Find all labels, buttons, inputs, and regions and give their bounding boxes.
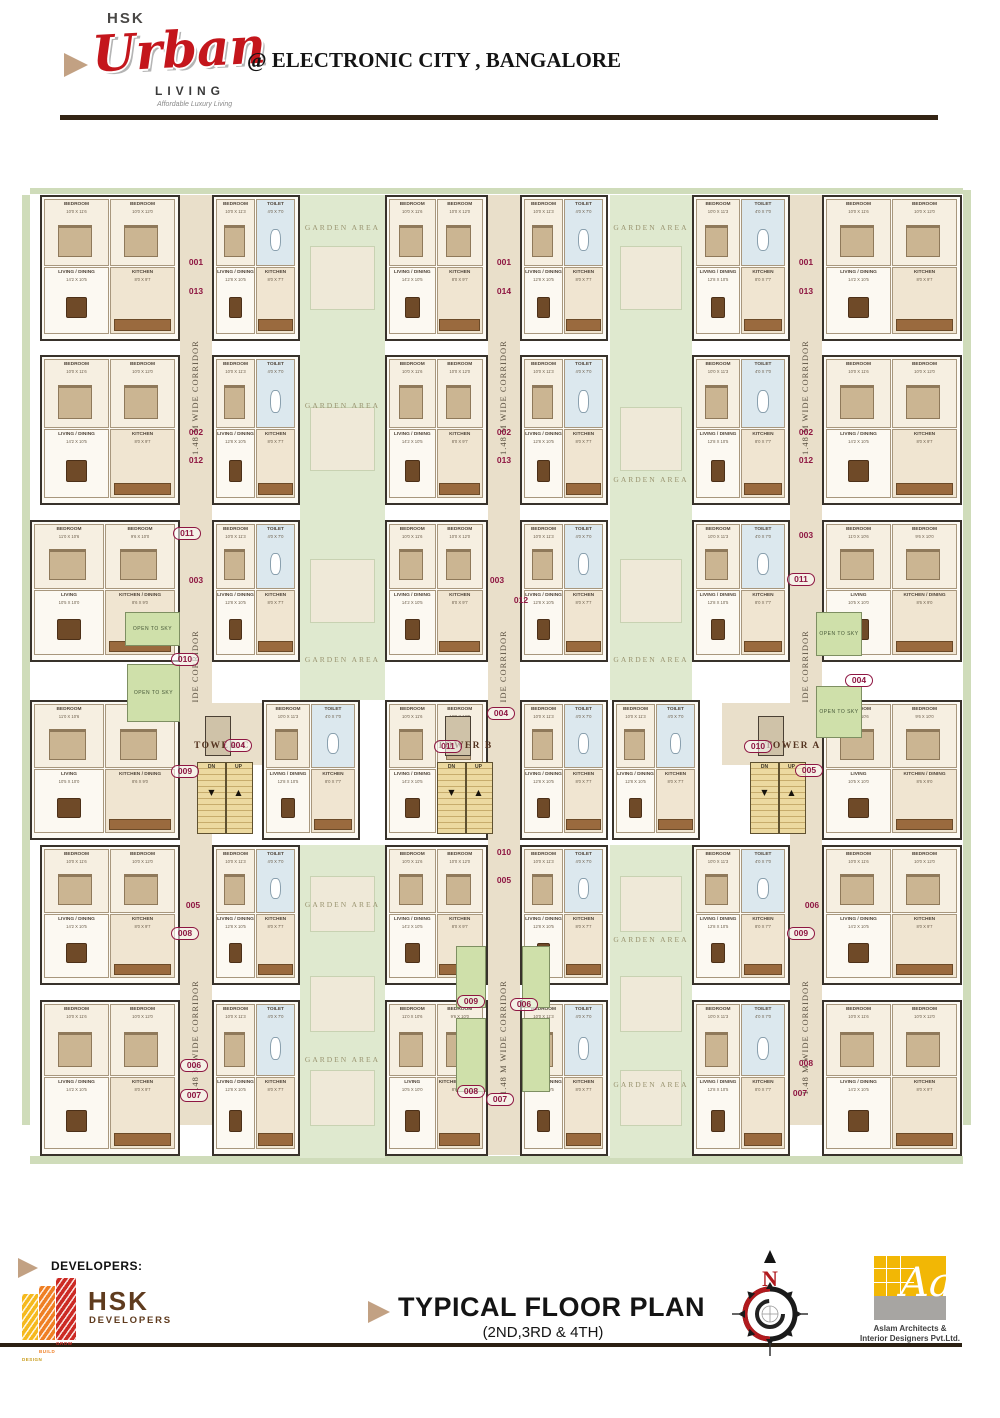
room-dimension: 8'0 X 7'7 — [565, 439, 602, 444]
room: BEDROOM10'0 X 11'3 — [216, 359, 255, 428]
room-dimension: 10'5 X 10'0 — [35, 600, 103, 605]
room-label: BEDROOM — [390, 202, 435, 207]
room-dimension: 14'2 X 10'5 — [390, 924, 435, 929]
unit-block: BEDROOM10'0 X 11'6BEDROOM10'0 X 12'0LIVI… — [40, 845, 180, 985]
room: KITCHEN8'0 X 7'7 — [741, 429, 785, 498]
dining-table-icon — [229, 943, 242, 963]
room: KITCHEN8'0 X 7'7 — [741, 590, 785, 655]
unit-number: 003 — [183, 575, 209, 586]
bed-icon — [49, 549, 86, 581]
room-label: KITCHEN — [893, 432, 956, 437]
room: LIVING / DINING14'2 X 10'5 — [826, 914, 891, 978]
toilet-icon — [757, 1037, 770, 1061]
bed-icon — [58, 225, 93, 258]
room-label: BEDROOM — [390, 362, 435, 367]
stair-dn-label: DN — [438, 764, 465, 770]
dining-table-icon — [405, 460, 420, 481]
room: TOILET4'0 X 7'0 — [256, 524, 295, 589]
architect-logo-icon: Aa — [874, 1256, 946, 1320]
room-dimension: 10'0 X 11'3 — [525, 209, 562, 214]
room: LIVING / DINING12'8 X 10'5 — [696, 590, 740, 655]
bed-icon — [124, 1032, 159, 1067]
dining-table-icon — [848, 1110, 869, 1132]
room-label: KITCHEN — [257, 432, 294, 437]
room-label: LIVING / DINING — [390, 270, 435, 275]
room-label: BEDROOM — [438, 852, 483, 857]
room-label: BEDROOM — [438, 362, 483, 367]
unit-number: 008 — [171, 927, 199, 940]
room-dimension: 10'0 X 11'6 — [45, 369, 108, 374]
bed-icon — [224, 225, 244, 258]
stair-dn-label: DN — [751, 764, 778, 770]
kitchen-counter-icon — [258, 319, 292, 331]
room-dimension: 10'0 X 11'6 — [827, 369, 890, 374]
room: BEDROOM10'0 X 11'3 — [524, 524, 563, 589]
room: KITCHEN8'0 X 7'7 — [256, 429, 295, 498]
room: BEDROOM11'0 X 10'6 — [34, 524, 104, 589]
toilet-icon — [270, 553, 281, 574]
room: BEDROOM10'0 X 11'3 — [216, 1004, 255, 1076]
room-dimension: 14'2 X 10'5 — [45, 924, 108, 929]
room-dimension: 10'0 X 12'0 — [893, 209, 956, 214]
room-dimension: 10'0 X 11'3 — [525, 859, 562, 864]
garden-area-label: GARDEN AREA — [288, 1055, 397, 1064]
unit-block: BEDROOM10'0 X 11'6BEDROOM10'0 X 12'0LIVI… — [822, 845, 962, 985]
room-label: LIVING / DINING — [525, 432, 562, 437]
garden-planter — [310, 407, 375, 471]
kitchen-counter-icon — [566, 819, 600, 830]
room-dimension: 10'0 X 12'0 — [438, 534, 483, 539]
room: BEDROOM10'0 X 11'3 — [524, 199, 563, 266]
room-label: BEDROOM — [525, 362, 562, 367]
room-dimension: 10'0 X 11'3 — [697, 859, 739, 864]
room-label: BEDROOM — [697, 527, 739, 532]
room: TOILET4'0 X 7'0 — [564, 524, 603, 589]
room-dimension: 12'8 X 10'5 — [217, 439, 254, 444]
bed-icon — [906, 729, 941, 760]
kitchen-counter-icon — [439, 319, 480, 331]
room: BEDROOM10'0 X 11'6 — [44, 849, 109, 913]
room-dimension: 8'0 X 9'7 — [111, 1087, 174, 1092]
room-dimension: 8'0 X 9'7 — [111, 277, 174, 282]
developer-arrow-icon — [18, 1258, 38, 1278]
kitchen-counter-icon — [439, 641, 480, 652]
room: BEDROOM10'0 X 11'6 — [389, 524, 436, 589]
room-label: KITCHEN — [257, 1080, 294, 1085]
dining-table-icon — [848, 798, 869, 818]
dining-table-icon — [848, 460, 869, 481]
room: LIVING / DINING14'2 X 10'5 — [44, 267, 109, 334]
room-label: TOILET — [742, 362, 784, 367]
dining-table-icon — [66, 297, 87, 318]
dining-table-icon — [629, 798, 642, 818]
room-label: LIVING / DINING — [217, 1080, 254, 1085]
room-label: BEDROOM — [827, 852, 890, 857]
unit-block: BEDROOM10'0 X 11'6BEDROOM10'0 X 12'0LIVI… — [40, 1000, 180, 1156]
room-label: KITCHEN — [111, 432, 174, 437]
room-dimension: 14'2 X 10'5 — [390, 779, 435, 784]
sheet-subtitle: (2ND,3RD & 4TH) — [398, 1324, 688, 1341]
room-label: BEDROOM — [217, 1007, 254, 1012]
room-dimension: 10'0 X 11'3 — [697, 534, 739, 539]
room-label: LIVING / DINING — [525, 270, 562, 275]
architect-caption-1: Aslam Architects & — [850, 1324, 970, 1334]
room-label: KITCHEN / DINING — [893, 772, 956, 777]
room-label: BEDROOM — [697, 202, 739, 207]
room: BEDROOM10'0 X 11'6 — [826, 1004, 891, 1076]
room-label: TOILET — [742, 852, 784, 857]
room-label: BEDROOM — [893, 362, 956, 367]
room-dimension: 8'0 X 7'7 — [565, 924, 602, 929]
room-label: LIVING / DINING — [267, 772, 309, 777]
room: LIVING / DINING12'8 X 10'5 — [216, 267, 255, 334]
room: BEDROOM10'0 X 11'3 — [696, 524, 740, 589]
toilet-icon — [670, 733, 681, 754]
room-dimension: 8'0 X 9'7 — [438, 600, 483, 605]
room-dimension: 8'0 X 7'7 — [257, 600, 294, 605]
bed-icon — [224, 1032, 244, 1067]
room: TOILET4'0 X 7'0 — [256, 359, 295, 428]
room: BEDROOM9'6 X 10'0 — [105, 524, 175, 589]
developers-label: DEVELOPERS: — [51, 1259, 143, 1273]
room-dimension: 12'8 X 10'5 — [697, 1087, 739, 1092]
dining-table-icon — [848, 943, 869, 963]
room-dimension: 10'0 X 12'0 — [438, 369, 483, 374]
room: KITCHEN8'0 X 7'7 — [256, 267, 295, 334]
unit-number: 001 — [793, 257, 819, 268]
room-dimension: 8'0 X 7'7 — [742, 439, 784, 444]
tower-label: TOWER C — [172, 741, 272, 751]
unit-block: BEDROOM10'0 X 11'3TOILET4'0 X 7'0LIVING … — [692, 845, 790, 985]
room-dimension: 8'0 X 9'7 — [111, 924, 174, 929]
unit-block: BEDROOM10'0 X 11'3TOILET4'0 X 7'0LIVING … — [212, 355, 300, 505]
room-dimension: 10'0 X 12'0 — [438, 209, 483, 214]
room: TOILET4'0 X 7'0 — [256, 1004, 295, 1076]
room-dimension: 10'0 X 11'6 — [390, 534, 435, 539]
room-label: KITCHEN — [742, 593, 784, 598]
dining-table-icon — [848, 297, 869, 318]
room-dimension: 4'0 X 7'0 — [565, 714, 602, 719]
room-dimension: 10'0 X 12'0 — [893, 1014, 956, 1019]
dining-table-icon — [537, 297, 550, 318]
toilet-icon — [578, 733, 589, 754]
kitchen-counter-icon — [744, 964, 783, 975]
room: LIVING10'5 X 10'0 — [389, 1077, 436, 1149]
room-label: TOILET — [257, 852, 294, 857]
room: BEDROOM11'0 X 10'6 — [34, 704, 104, 768]
room-dimension: 4'0 X 7'0 — [565, 534, 602, 539]
room: KITCHEN8'0 X 9'7 — [110, 429, 175, 498]
room-label: BEDROOM — [390, 707, 435, 712]
hedge — [30, 1156, 963, 1164]
toilet-icon — [327, 733, 340, 754]
dining-table-icon — [405, 943, 420, 963]
kitchen-counter-icon — [896, 964, 954, 975]
room-label: TOILET — [565, 707, 602, 712]
room: TOILET4'0 X 7'0 — [741, 1004, 785, 1076]
room: KITCHEN / DINING8'6 X 9'0 — [892, 590, 957, 655]
room-dimension: 10'0 X 11'3 — [697, 1014, 739, 1019]
room-label: BEDROOM — [390, 527, 435, 532]
toilet-icon — [270, 1037, 281, 1061]
room: KITCHEN8'0 X 7'7 — [564, 429, 603, 498]
room-label: BEDROOM — [438, 527, 483, 532]
bed-icon — [224, 874, 244, 905]
room-label: LIVING / DINING — [827, 917, 890, 922]
unit-number: 007 — [787, 1088, 813, 1099]
room-label: LIVING — [35, 593, 103, 598]
room: BEDROOM10'0 X 11'6 — [826, 199, 891, 266]
room: BEDROOM10'0 X 12'0 — [110, 849, 175, 913]
room-label: LIVING / DINING — [827, 432, 890, 437]
room: KITCHEN8'0 X 7'7 — [741, 914, 785, 978]
room-dimension: 8'0 X 7'7 — [742, 600, 784, 605]
room-label: TOILET — [257, 527, 294, 532]
room-dimension: 8'6 X 9'0 — [893, 600, 956, 605]
bed-icon — [124, 225, 159, 258]
room-label: LIVING / DINING — [217, 917, 254, 922]
room: KITCHEN8'0 X 9'7 — [437, 267, 484, 334]
bed-icon — [58, 385, 93, 419]
room: TOILET4'0 X 7'0 — [741, 849, 785, 913]
room-dimension: 10'0 X 11'3 — [217, 534, 254, 539]
unit-number: 013 — [491, 455, 517, 466]
room-dimension: 10'0 X 11'3 — [217, 859, 254, 864]
room-dimension: 4'0 X 7'0 — [257, 369, 294, 374]
unit-block: BEDROOM10'0 X 11'3TOILET4'0 X 7'0LIVING … — [520, 355, 608, 505]
room-dimension: 10'0 X 11'3 — [525, 534, 562, 539]
room-dimension: 4'0 X 7'0 — [257, 534, 294, 539]
room-label: BEDROOM — [217, 362, 254, 367]
room-label: KITCHEN — [565, 270, 602, 275]
room-label: BEDROOM — [390, 852, 435, 857]
room: KITCHEN8'0 X 9'7 — [437, 590, 484, 655]
unit-number: 010 — [491, 847, 517, 858]
room-dimension: 8'0 X 9'7 — [893, 1087, 956, 1092]
unit-number: 004 — [224, 739, 252, 752]
garden-area-label: GARDEN AREA — [598, 1080, 704, 1089]
room-label: BEDROOM — [111, 1007, 174, 1012]
room: BEDROOM9'6 X 10'0 — [892, 524, 957, 589]
unit-number: 002 — [793, 427, 819, 438]
room-dimension: 10'0 X 11'6 — [45, 859, 108, 864]
room: KITCHEN8'0 X 7'7 — [564, 267, 603, 334]
dining-table-icon — [711, 943, 725, 963]
open-to-sky: OPEN TO SKY — [816, 686, 862, 738]
bed-icon — [705, 549, 728, 581]
room: LIVING10'5 X 10'0 — [826, 769, 891, 833]
room: KITCHEN8'0 X 7'7 — [256, 914, 295, 978]
room: TOILET4'0 X 7'0 — [656, 704, 695, 768]
room-label: KITCHEN — [742, 270, 784, 275]
room-dimension: 8'0 X 9'7 — [893, 277, 956, 282]
room: TOILET4'0 X 7'0 — [564, 704, 603, 768]
dining-table-icon — [711, 460, 725, 481]
unit-block: BEDROOM10'0 X 11'3TOILET4'0 X 7'0LIVING … — [212, 520, 300, 662]
room: LIVING / DINING12'8 X 10'5 — [696, 267, 740, 334]
stair-arrow-up-icon: ▲ — [465, 788, 492, 797]
stair-arrow-down-icon: ▼ — [751, 788, 778, 797]
room-label: KITCHEN — [438, 270, 483, 275]
room-label: KITCHEN — [257, 917, 294, 922]
room: LIVING / DINING14'2 X 10'5 — [389, 914, 436, 978]
room-dimension: 12'8 X 10'5 — [697, 600, 739, 605]
stair-up-label: UP — [465, 764, 492, 770]
kitchen-counter-icon — [439, 483, 480, 495]
room-dimension: 8'0 X 9'7 — [438, 439, 483, 444]
room-dimension: 14'2 X 10'5 — [827, 1087, 890, 1092]
room-label: KITCHEN — [257, 593, 294, 598]
bed-icon — [446, 874, 470, 905]
room: KITCHEN8'0 X 7'7 — [564, 914, 603, 978]
room-label: KITCHEN / DINING — [106, 593, 174, 598]
developer-name: HSK — [88, 1286, 149, 1317]
room-dimension: 8'6 X 9'0 — [106, 779, 174, 784]
unit-block: BEDROOM10'0 X 11'6BEDROOM10'0 X 12'0LIVI… — [385, 195, 488, 341]
room-label: LIVING / DINING — [390, 432, 435, 437]
unit-number: 006 — [510, 998, 538, 1011]
room: LIVING / DINING12'8 X 10'5 — [266, 769, 310, 833]
unit-number: 003 — [793, 530, 819, 541]
room-label: BEDROOM — [35, 707, 103, 712]
room-label: TOILET — [257, 202, 294, 207]
garden-planter — [310, 246, 375, 310]
room: BEDROOM11'0 X 10'6 — [389, 1004, 436, 1076]
room-label: BEDROOM — [525, 707, 562, 712]
room-dimension: 10'0 X 11'6 — [45, 1014, 108, 1019]
room-dimension: 14'2 X 10'5 — [45, 439, 108, 444]
bed-icon — [906, 1032, 941, 1067]
unit-number: 012 — [508, 595, 534, 606]
dining-table-icon — [711, 297, 725, 318]
room-dimension: 12'8 X 10'5 — [697, 277, 739, 282]
room: LIVING / DINING14'2 X 10'5 — [826, 267, 891, 334]
bed-icon — [224, 385, 244, 419]
architect-mark: Aa — [900, 1260, 953, 1306]
room-dimension: 12'8 X 10'5 — [217, 1087, 254, 1092]
room: TOILET4'0 X 7'0 — [741, 524, 785, 589]
stair-arrow-up-icon: ▲ — [225, 788, 252, 797]
unit-number: 006 — [180, 1059, 208, 1072]
unit-block: BEDROOM10'0 X 11'3TOILET4'0 X 7'0LIVING … — [212, 845, 300, 985]
garden-planter — [620, 1070, 682, 1126]
sheet-title: TYPICAL FLOOR PLAN — [398, 1292, 705, 1323]
developer-block: DEVELOPERS: GROW BUILD DESIGN HSK DEVELO… — [18, 1252, 258, 1352]
room: KITCHEN8'0 X 9'7 — [110, 914, 175, 978]
room-dimension: 8'0 X 7'7 — [257, 1087, 294, 1092]
room-label: KITCHEN — [565, 772, 602, 777]
room-dimension: 12'8 X 10'5 — [525, 779, 562, 784]
room-dimension: 11'0 X 10'6 — [35, 714, 103, 719]
room: BEDROOM11'0 X 10'6 — [826, 524, 891, 589]
unit-number: 009 — [457, 995, 485, 1008]
room-label: BEDROOM — [217, 527, 254, 532]
room: BEDROOM10'0 X 12'0 — [110, 359, 175, 428]
room-label: BEDROOM — [697, 1007, 739, 1012]
unit-number: 009 — [787, 927, 815, 940]
corridor-label: 1.48 M WIDE CORRIDOR — [800, 945, 810, 1095]
open-to-sky: OPEN TO SKY — [816, 612, 862, 656]
unit-block: BEDROOM10'0 X 11'3TOILET4'0 X 7'0LIVING … — [612, 700, 700, 840]
kitchen-counter-icon — [658, 819, 692, 830]
room-dimension: 8'0 X 9'7 — [438, 924, 483, 929]
room: TOILET4'0 X 7'0 — [564, 199, 603, 266]
bed-icon — [906, 874, 941, 905]
room-dimension: 10'0 X 11'6 — [827, 1014, 890, 1019]
room-dimension: 12'8 X 10'5 — [525, 924, 562, 929]
open-to-sky — [522, 1018, 550, 1092]
unit-block: BEDROOM10'0 X 11'3TOILET4'0 X 7'0LIVING … — [520, 195, 608, 341]
architect-caption-2: Interior Designers Pvt.Ltd. — [850, 1334, 970, 1344]
room-dimension: 8'0 X 9'7 — [893, 439, 956, 444]
room-dimension: 10'0 X 11'6 — [827, 859, 890, 864]
unit-number: 014 — [491, 286, 517, 297]
toilet-icon — [270, 878, 281, 899]
toilet-icon — [578, 229, 589, 251]
garden-area-label: GARDEN AREA — [288, 223, 397, 232]
open-to-sky: OPEN TO SKY — [125, 612, 180, 646]
room-dimension: 8'0 X 9'7 — [111, 439, 174, 444]
room: BEDROOM10'0 X 11'3 — [696, 1004, 740, 1076]
room-dimension: 9'6 X 10'0 — [893, 534, 956, 539]
kitchen-counter-icon — [439, 1133, 480, 1146]
room-label: LIVING / DINING — [697, 432, 739, 437]
room: KITCHEN8'0 X 9'7 — [892, 267, 957, 334]
kitchen-counter-icon — [114, 483, 172, 495]
room: KITCHEN8'0 X 7'7 — [256, 1077, 295, 1149]
room: TOILET4'0 X 7'0 — [311, 704, 355, 768]
garden-planter — [620, 559, 682, 623]
room-label: TOILET — [257, 362, 294, 367]
room: TOILET4'0 X 7'0 — [256, 849, 295, 913]
room-dimension: 10'0 X 12'0 — [111, 209, 174, 214]
room: TOILET4'0 X 7'0 — [741, 199, 785, 266]
room-label: KITCHEN — [565, 1080, 602, 1085]
bed-icon — [49, 729, 86, 760]
room-label: TOILET — [565, 362, 602, 367]
bed-icon — [532, 225, 552, 258]
developer-name-sub: DEVELOPERS — [89, 1315, 172, 1326]
kitchen-counter-icon — [744, 1133, 783, 1146]
room: LIVING / DINING12'8 X 10'5 — [216, 590, 255, 655]
staircase: DNUP▼▲ — [437, 762, 493, 834]
room: KITCHEN8'0 X 7'7 — [256, 590, 295, 655]
bed-icon — [224, 549, 244, 581]
room: TOILET4'0 X 7'0 — [564, 1004, 603, 1076]
room-label: LIVING / DINING — [697, 1080, 739, 1085]
room-label: BEDROOM — [697, 362, 739, 367]
room-dimension: 10'0 X 11'3 — [525, 714, 562, 719]
hsk-logo-icon: GROW BUILD DESIGN — [22, 1278, 84, 1344]
toilet-icon — [757, 878, 770, 899]
room-dimension: 10'0 X 11'3 — [697, 369, 739, 374]
stair-up-label: UP — [225, 764, 252, 770]
room-dimension: 10'0 X 12'0 — [111, 1014, 174, 1019]
room-label: BEDROOM — [106, 527, 174, 532]
unit-block: BEDROOM10'0 X 11'3TOILET4'0 X 7'0LIVING … — [212, 195, 300, 341]
room-label: KITCHEN — [312, 772, 354, 777]
kitchen-counter-icon — [896, 641, 954, 652]
dining-table-icon — [405, 297, 420, 318]
room-dimension: 11'0 X 10'6 — [827, 534, 890, 539]
unit-block: BEDROOM10'0 X 11'3TOILET4'0 X 7'0LIVING … — [692, 1000, 790, 1156]
unit-block: BEDROOM10'0 X 11'6BEDROOM10'0 X 12'0LIVI… — [822, 195, 962, 341]
room-label: LIVING — [35, 772, 103, 777]
room-label: LIVING / DINING — [45, 1080, 108, 1085]
logo-word-grow: GROW — [56, 1341, 73, 1346]
bed-icon — [906, 549, 941, 581]
unit-number: 011 — [434, 740, 462, 753]
